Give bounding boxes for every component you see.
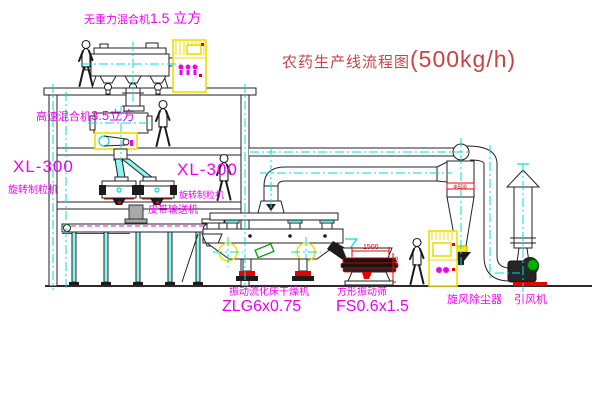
label-fan: 引风机: [514, 295, 547, 306]
vibrating-sieve: 1500 545: [341, 239, 400, 285]
belt-conveyor: [62, 224, 212, 285]
mixer-mid-name: 高速混合机: [36, 111, 91, 123]
label-dryer-model: ZLG6x0.75: [222, 299, 301, 315]
control-cabinet-right: [429, 231, 457, 286]
drawing-title: 农药生产线流程图(500kg/h): [282, 48, 516, 71]
label-granulator-right-model: XL-300: [177, 161, 238, 178]
label-mixer-top: 无重力混合机1.5 立方: [84, 11, 201, 26]
cyclone-diameter-text: Φ500: [453, 185, 467, 191]
flow-diagram-canvas: Φ500 1500: [0, 0, 600, 403]
sieve-length-dim: 1500: [363, 244, 379, 251]
label-sieve-name: 方形振动筛: [337, 288, 387, 298]
mixer-top-name: 无重力混合机: [84, 14, 150, 26]
conveyor-legs: [69, 232, 203, 285]
granulator-left: [99, 177, 139, 205]
label-mixer-mid: 高速混合机3.5立方: [36, 109, 135, 123]
granulator-right: [137, 177, 177, 205]
exhaust-stack: [507, 164, 539, 262]
label-sieve-model: FS0.6x1.5: [336, 299, 409, 315]
title-text: 农药生产线流程图: [282, 54, 410, 71]
title-capacity: (500kg/h): [410, 46, 516, 72]
fluid-bed-dryer: [202, 167, 351, 281]
person-figure: [410, 239, 424, 285]
person-figure: [156, 101, 170, 147]
dryer-supports: [236, 259, 314, 281]
label-dryer-name: 振动流化床干燥机: [229, 288, 309, 298]
induced-draft-fan: [508, 257, 547, 286]
label-granulator-left-model: XL-300: [13, 158, 74, 175]
control-cabinet-top: [173, 40, 206, 92]
mixer-belt-drive: [95, 133, 137, 149]
label-granulator-right-name: 旋转制粒机: [179, 191, 224, 200]
fan-motor: [528, 260, 539, 271]
person-figure: [79, 41, 93, 87]
label-granulator-left-name: 旋转制粒机: [8, 186, 58, 196]
sieve-height-dim: 545: [393, 256, 400, 268]
dryer-to-cyclone-duct: [285, 162, 447, 182]
label-belt-conveyor: 皮带输送机: [148, 206, 198, 216]
mixer-mid-spec: 3.5立方: [91, 108, 135, 123]
mixer-top-spec: 1.5 立方: [150, 10, 201, 26]
label-cyclone: 旋风除尘器: [447, 295, 502, 306]
